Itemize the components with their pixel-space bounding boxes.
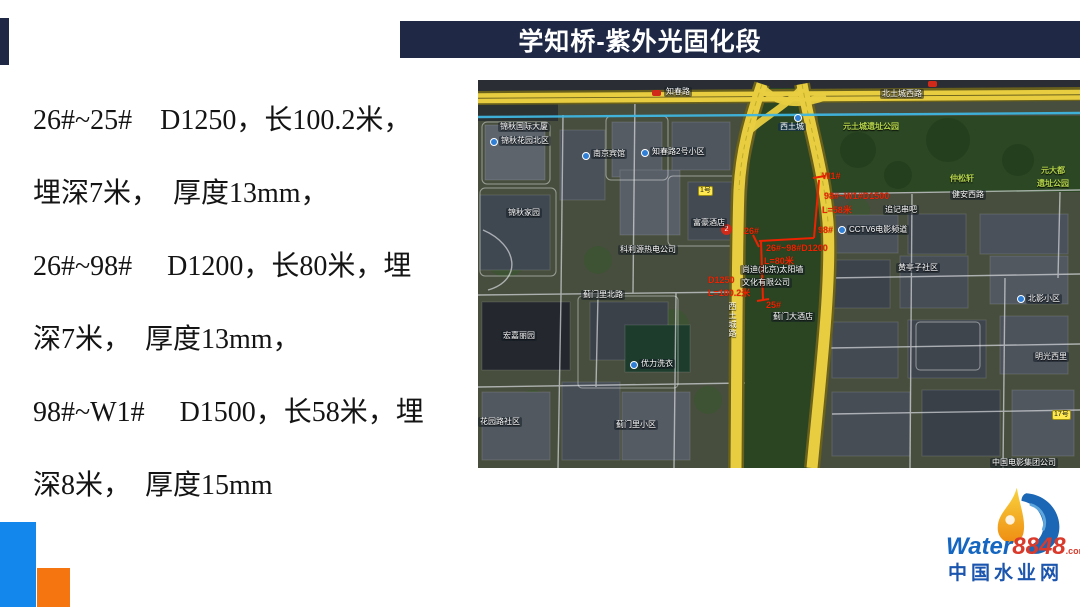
segment-label: L=58米 xyxy=(822,206,852,215)
map-label: 蓟门里北路 xyxy=(581,290,625,300)
manhole-label-26: 26# xyxy=(744,227,759,236)
road-label-zhichun: 知春路 xyxy=(664,87,692,97)
segment-label: 98#~W1#D1500 xyxy=(824,192,889,201)
map-label: 科利源热电公司 xyxy=(618,245,678,255)
metro-station-icon xyxy=(794,114,802,122)
logo-text-cn: 中国水业网 xyxy=(948,558,1063,585)
map-label: 黄亭子社区 xyxy=(896,263,940,273)
poi-icon xyxy=(582,152,590,160)
map-label: 健安西路 xyxy=(950,190,986,200)
map-label: 优力洗衣 xyxy=(639,359,675,369)
map-label: 富豪酒店 xyxy=(691,218,727,228)
map-label: 蓟门大酒店 xyxy=(771,312,815,322)
park-label: 元土城遗址公园 xyxy=(843,123,899,131)
body-line: 深8米， 厚度15mm xyxy=(33,449,463,522)
title-bar: 学知桥-紫外光固化段 xyxy=(400,21,1080,58)
satellite-map: 知春路 北土城西路 西土城路 西土城 2 1号 17号 锦秋国际大厦 锦秋花园北… xyxy=(478,80,1080,468)
slide: 学知桥-紫外光固化段 26#~25# D1250，长100.2米， 埋深7米， … xyxy=(0,0,1080,607)
map-label: 花园路社区 xyxy=(478,417,522,427)
map-label: 明光西里 xyxy=(1033,352,1069,362)
building-number-badge: 1号 xyxy=(698,186,713,196)
body-line: 26#~98# D1200，长80米，埋 xyxy=(33,230,463,303)
body-line: 深7米， 厚度13mm， xyxy=(33,303,463,376)
map-label: 知春路2号小区 xyxy=(650,147,706,157)
manhole-label-w1: W1# xyxy=(822,172,841,181)
map-label: 锦秋家园 xyxy=(506,208,542,218)
manhole-label-25: 25# xyxy=(766,301,781,310)
road-label-xitucheng: 西土城路 xyxy=(728,302,736,338)
map-label: 追记串吧 xyxy=(883,205,919,215)
poi-icon xyxy=(1017,295,1025,303)
deco-square-orange xyxy=(37,568,70,607)
road-badge-icon xyxy=(928,81,937,87)
corner-accent-square xyxy=(0,18,9,65)
station-label: 西土城 xyxy=(778,123,806,131)
map-label: 北影小区 xyxy=(1026,294,1062,304)
manhole-label-98: 98# xyxy=(818,226,833,235)
map-label: 南京宾馆 xyxy=(591,149,627,159)
body-text-block: 26#~25# D1250，长100.2米， 埋深7米， 厚度13mm， 26#… xyxy=(33,84,463,522)
poi-icon xyxy=(490,138,498,146)
map-label: 锦秋花园北区 xyxy=(499,136,551,146)
page-title: 学知桥-紫外光固化段 xyxy=(400,22,880,58)
park-label: 仲松轩 xyxy=(950,175,974,183)
logo-text-en: Water8848.com xyxy=(946,533,1080,561)
building-number-badge: 17号 xyxy=(1052,410,1071,420)
water8848-logo: Water8848.com 中国水业网 xyxy=(946,480,1080,604)
body-line: 98#~W1# D1500，长58米，埋 xyxy=(33,376,463,449)
road-label-beitucheng: 北土城西路 xyxy=(880,89,924,99)
segment-label: L=80米 xyxy=(764,257,794,266)
poi-icon xyxy=(641,149,649,157)
segment-label: L=100.2米 xyxy=(708,289,750,298)
poi-icon xyxy=(630,361,638,369)
body-line: 埋深7米， 厚度13mm， xyxy=(33,157,463,230)
segment-label: D1250 xyxy=(708,276,735,285)
park-label: 元大都 xyxy=(1041,167,1065,175)
map-label: 中国电影集团公司 xyxy=(990,458,1058,468)
segment-label: 26#~98#D1200 xyxy=(766,244,828,253)
body-line: 26#~25# D1250，长100.2米， xyxy=(33,84,463,157)
map-label: CCTV6电影频道 xyxy=(847,225,909,235)
map-label: 锦秋国际大厦 xyxy=(498,122,550,132)
poi-icon xyxy=(838,226,846,234)
park-label: 遗址公园 xyxy=(1037,180,1069,188)
map-label: 尚迪(北京)太阳墙 xyxy=(740,265,805,275)
map-label: 蓟门里小区 xyxy=(614,420,658,430)
deco-square-blue xyxy=(0,522,36,607)
map-label: 宏嘉丽园 xyxy=(501,331,537,341)
map-label: 文化有限公司 xyxy=(740,278,792,288)
road-badge-icon xyxy=(652,90,661,96)
